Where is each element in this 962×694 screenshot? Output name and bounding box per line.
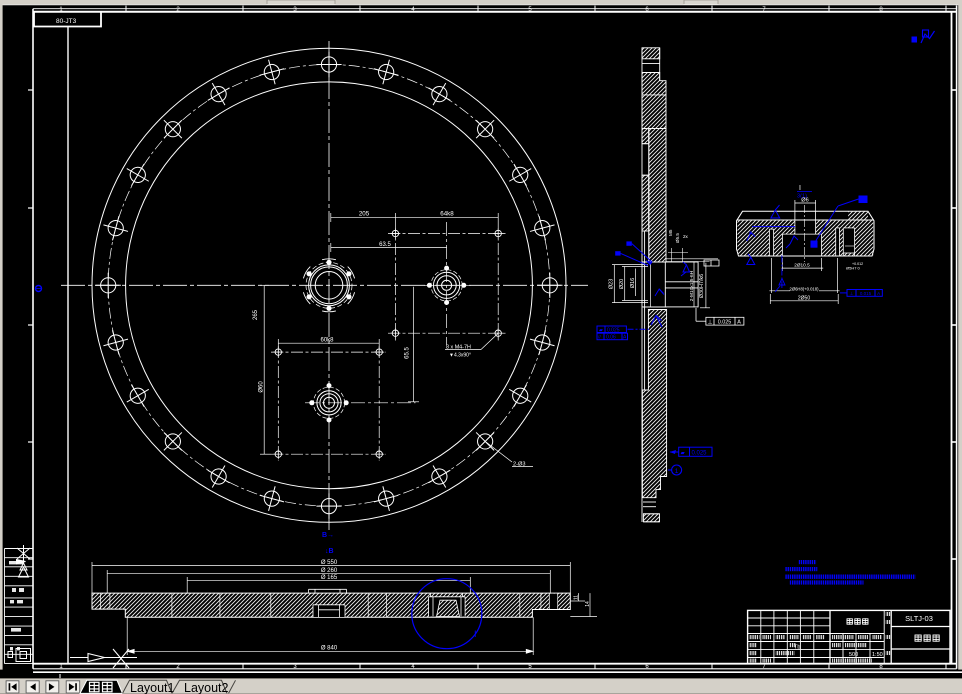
svg-text:M5: M5 bbox=[668, 229, 673, 236]
svg-text:64k8: 64k8 bbox=[440, 211, 454, 218]
svg-text:Ø 550: Ø 550 bbox=[321, 560, 338, 566]
svg-text:Ø 165: Ø 165 bbox=[321, 575, 338, 581]
svg-text:0.06: 0.06 bbox=[606, 335, 616, 341]
svg-text:⊥: ⊥ bbox=[708, 320, 713, 326]
svg-text:Ø23: Ø23 bbox=[609, 279, 615, 290]
svg-text:I: I bbox=[474, 629, 477, 639]
svg-text:0.025: 0.025 bbox=[718, 320, 732, 326]
svg-text:2-M10x1.5-6H: 2-M10x1.5-6H bbox=[689, 270, 695, 301]
svg-text:B→: B→ bbox=[322, 532, 334, 539]
svg-text:0.025: 0.025 bbox=[607, 328, 620, 334]
svg-text:2x: 2x bbox=[683, 234, 689, 239]
svg-text:▼4.3x90°: ▼4.3x90° bbox=[449, 353, 471, 359]
svg-text:▰: ▰ bbox=[599, 329, 603, 334]
svg-text:2Ø10.5: 2Ø10.5 bbox=[794, 263, 810, 268]
svg-text:265: 265 bbox=[253, 309, 259, 320]
svg-text:Ø 260: Ø 260 bbox=[321, 568, 338, 574]
svg-text:1: 1 bbox=[675, 468, 679, 475]
svg-text:Ø20: Ø20 bbox=[619, 279, 625, 290]
svg-text:11: 11 bbox=[574, 595, 580, 600]
svg-text:Tb: Tb bbox=[794, 645, 800, 651]
svg-text:A: A bbox=[737, 320, 741, 326]
svg-text:8 x M4-7H: 8 x M4-7H bbox=[446, 345, 471, 351]
svg-text:1:50: 1:50 bbox=[872, 652, 883, 658]
svg-text:80-JT3: 80-JT3 bbox=[56, 18, 77, 25]
svg-text:2Ø50: 2Ø50 bbox=[798, 296, 810, 302]
svg-text:Ø5H7 0: Ø5H7 0 bbox=[846, 265, 861, 270]
svg-text:Ø5.5: Ø5.5 bbox=[675, 233, 680, 243]
svg-text:2Ø6H8(+0.018): 2Ø6H8(+0.018) bbox=[790, 286, 820, 291]
svg-text:0.025: 0.025 bbox=[692, 451, 708, 457]
svg-text:⊥: ⊥ bbox=[850, 291, 854, 296]
svg-text:Ø16: Ø16 bbox=[630, 278, 636, 289]
svg-text:I: I bbox=[799, 185, 801, 192]
svg-text:65.5: 65.5 bbox=[405, 347, 411, 359]
svg-text:Ø 840: Ø 840 bbox=[321, 646, 338, 652]
svg-text:2-Ø3: 2-Ø3 bbox=[513, 462, 525, 468]
svg-text:Ø30H7/k6: Ø30H7/k6 bbox=[699, 274, 705, 298]
svg-text:205: 205 bbox=[359, 211, 370, 218]
svg-text:↓B: ↓B bbox=[325, 548, 334, 555]
svg-text:Ø60: Ø60 bbox=[259, 381, 265, 393]
svg-text:▰: ▰ bbox=[681, 451, 686, 457]
svg-text:Layout1: Layout1 bbox=[130, 681, 175, 694]
svg-text:Ø6: Ø6 bbox=[801, 198, 808, 204]
svg-text:a: a bbox=[749, 230, 752, 236]
svg-text:A: A bbox=[877, 291, 880, 296]
svg-text:14: 14 bbox=[585, 601, 591, 607]
svg-text:500: 500 bbox=[849, 652, 858, 658]
svg-text:60k8: 60k8 bbox=[320, 338, 334, 344]
svg-text:0.015: 0.015 bbox=[860, 291, 872, 296]
svg-text:Layout2: Layout2 bbox=[184, 681, 229, 694]
svg-text:63.5: 63.5 bbox=[379, 242, 391, 248]
svg-text:SLTJ-03: SLTJ-03 bbox=[905, 614, 933, 623]
